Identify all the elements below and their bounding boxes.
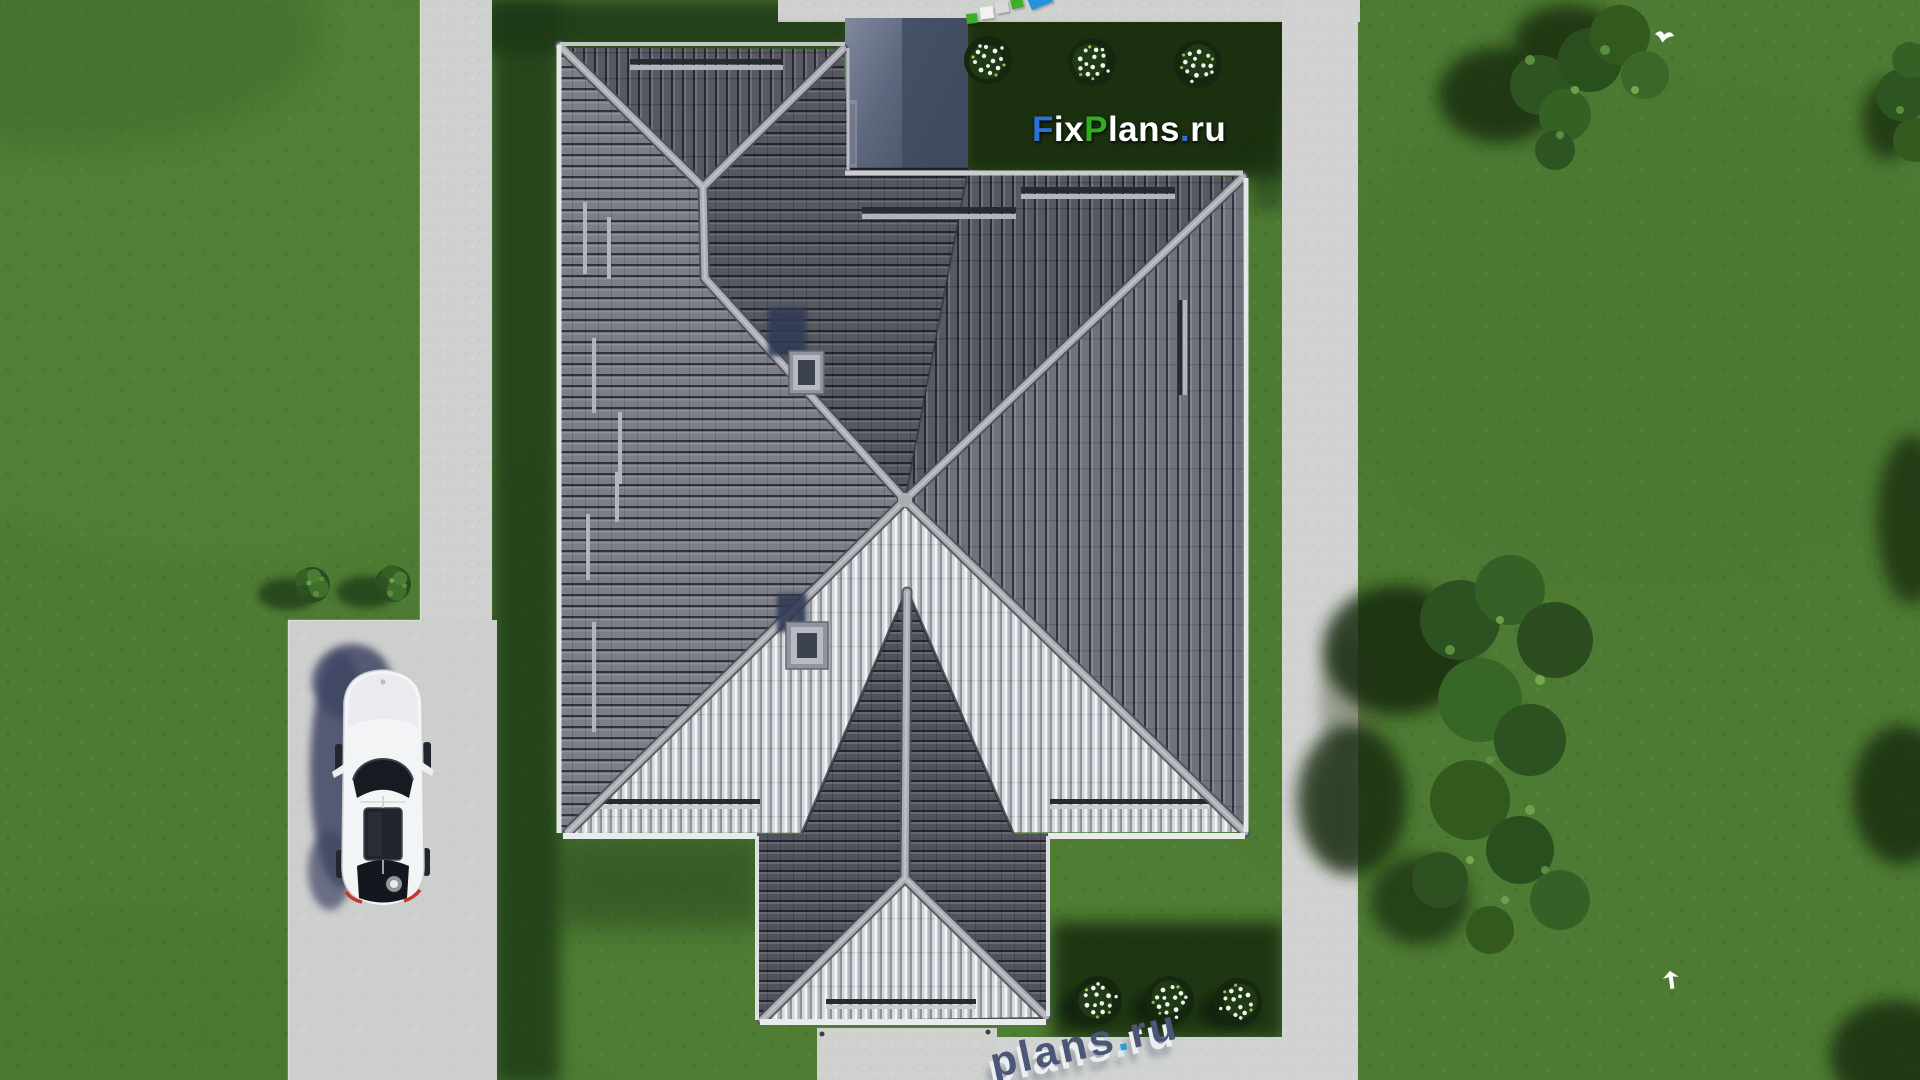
favicon-square-green-2	[1010, 0, 1024, 9]
fixplans-logo: FixPlans.ru	[1032, 110, 1226, 150]
terrace	[845, 18, 968, 170]
downspout	[820, 1032, 825, 1037]
logo-letters-lans: lans	[1108, 110, 1180, 149]
left-path	[420, 0, 492, 624]
scene-render: FixPlans.ru plans.ru	[0, 0, 1920, 1080]
scene-svg	[0, 0, 1920, 1080]
car	[308, 644, 434, 910]
favicon-square-white-1	[980, 6, 995, 20]
favicon-square-white-2	[995, 0, 1010, 14]
favicon-square-blue	[1024, 0, 1054, 10]
logo-letters-ix: ix	[1054, 110, 1084, 149]
car-body-group	[332, 670, 434, 906]
logo-dot: .	[1180, 110, 1190, 149]
ground-watermark-ru: ru	[1125, 1001, 1183, 1058]
downspout	[986, 1030, 991, 1035]
logo-letter-f: F	[1032, 110, 1054, 149]
favicon-square-green-1	[966, 13, 978, 24]
logo-letters-ru: ru	[1190, 110, 1226, 149]
logo-letter-p: P	[1084, 110, 1108, 149]
patio	[817, 1028, 997, 1080]
